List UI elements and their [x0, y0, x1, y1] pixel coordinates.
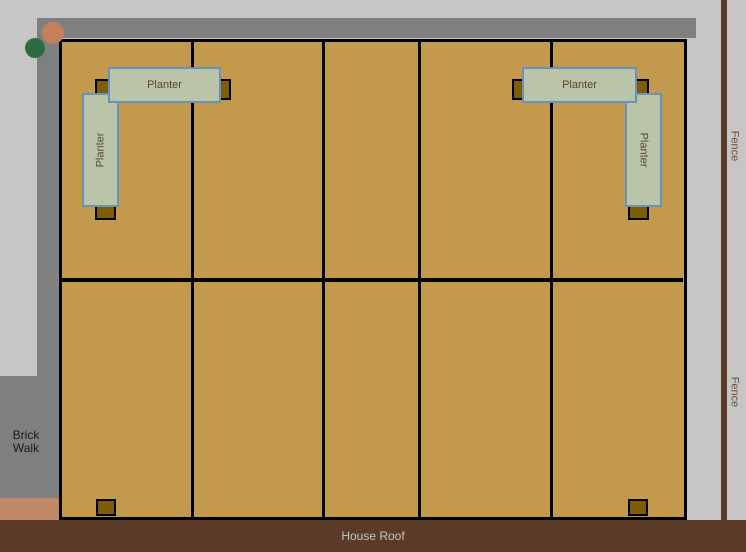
deck-post-bottom-right[interactable] — [628, 499, 648, 516]
planter-label: Planter — [95, 133, 107, 168]
fence-label-upper: Fence — [722, 126, 746, 166]
house-roof-label: House Roof — [341, 529, 404, 543]
planter-box-top-right[interactable]: Planter — [522, 67, 637, 103]
fence-label-lower: Fence — [722, 372, 746, 412]
planter-label: Planter — [638, 133, 650, 168]
deck-post-bottom-left[interactable] — [96, 499, 116, 516]
shrub-circle-orange[interactable] — [42, 22, 64, 44]
deck-plan-canvas: Brick Walk Planter Planter Planter Plant… — [0, 0, 746, 552]
planter-box-right-vertical[interactable]: Planter — [625, 93, 662, 207]
planter-box-left-vertical[interactable]: Planter — [82, 93, 119, 207]
brick-walk-label: Brick Walk — [3, 426, 49, 458]
planter-label: Planter — [147, 79, 182, 91]
brick-walk-end-pad — [0, 498, 59, 520]
planter-box-top-left[interactable]: Planter — [108, 67, 221, 103]
fence-line — [721, 0, 727, 520]
deck-divider-horizontal — [62, 278, 683, 282]
walkway-top-strip — [37, 18, 696, 38]
planter-label: Planter — [562, 79, 597, 91]
house-roof-bar: House Roof — [0, 520, 746, 552]
shrub-circle-green[interactable] — [25, 38, 45, 58]
